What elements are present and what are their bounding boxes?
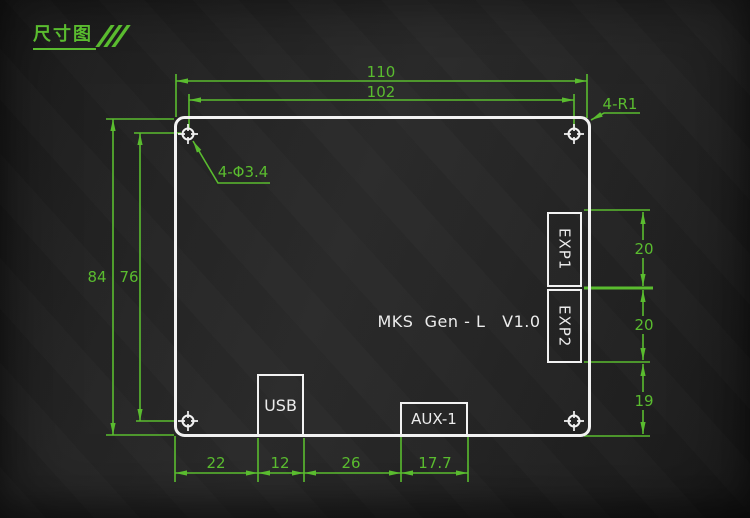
dim-hole-span-height: 76 xyxy=(119,269,138,285)
usb-connector: USB xyxy=(257,374,304,436)
dim-bottom-seg2: 12 xyxy=(270,455,289,471)
dim-exp1-height: 20 xyxy=(634,241,653,257)
dimension-drawing-canvas: 尺寸图 xyxy=(0,0,750,518)
mounting-hole-top-right xyxy=(564,124,584,144)
aux1-connector: AUX-1 xyxy=(400,402,468,436)
board-model-label: MKS Gen - L V1.0 xyxy=(377,314,540,330)
mounting-hole-bottom-right xyxy=(564,411,584,431)
usb-label: USB xyxy=(264,396,297,415)
dim-outer-width: 110 xyxy=(367,64,396,80)
mounting-hole-bottom-left xyxy=(178,411,198,431)
mounting-hole-top-left xyxy=(178,124,198,144)
dim-bottom-seg3: 26 xyxy=(341,455,360,471)
exp1-label: EXP1 xyxy=(556,228,574,270)
dim-exp2-height: 20 xyxy=(634,317,653,333)
dim-bottom-seg4: 17.7 xyxy=(418,455,451,471)
exp1-connector: EXP1 xyxy=(547,212,582,287)
corner-radius-note: 4-R1 xyxy=(603,96,638,112)
dim-bottom-seg1: 22 xyxy=(206,455,225,471)
exp2-connector: EXP2 xyxy=(547,289,582,363)
exp2-label: EXP2 xyxy=(556,305,574,347)
dim-hole-span-width: 102 xyxy=(367,84,396,100)
hole-diameter-note: 4-Φ3.4 xyxy=(218,164,269,180)
aux1-label: AUX-1 xyxy=(411,410,457,428)
dim-exp2-to-bottom: 19 xyxy=(634,393,653,409)
dim-outer-height: 84 xyxy=(87,269,106,285)
